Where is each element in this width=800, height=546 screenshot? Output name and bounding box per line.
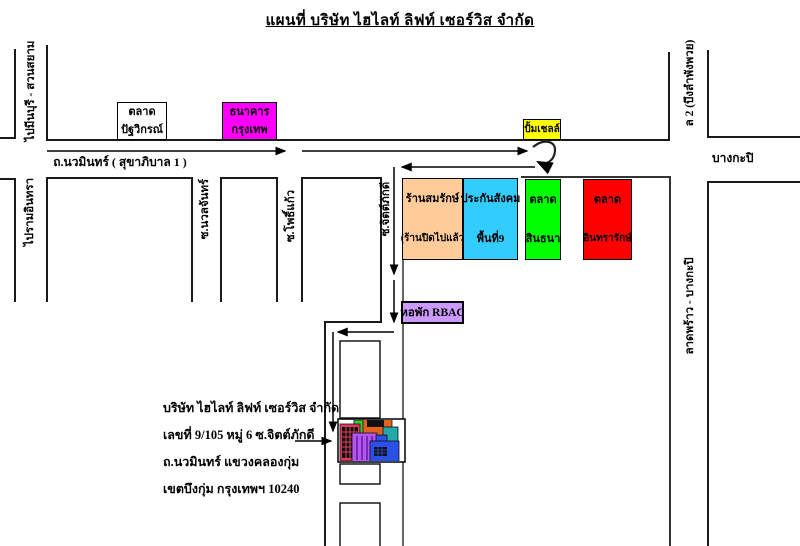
road-edge: [0, 179, 15, 302]
road-label-bangkapi: บางกะปิ: [712, 149, 754, 168]
company-address-line: ถ.นวมินทร์ แขวงคลองกุ่ม: [163, 449, 353, 476]
road-edge: [708, 182, 800, 546]
company-address: บริษัท ไฮไลท์ ลิฟท์ เซอร์วิส จำกัด เลขที…: [163, 395, 353, 503]
road-edge: [47, 178, 192, 302]
company-address-line: เขตบึงกุ่ม กรุงเทพฯ 10240: [163, 476, 353, 503]
landmark-label: พื้นที่9: [477, 233, 505, 245]
landmark-label: หอพัก RBAC: [400, 307, 465, 319]
landmark-sinthana-market: ตลาด สินธนา: [525, 179, 561, 260]
road-label-soi-chitphakdi: ซ.จิตต์ภักดี: [378, 149, 394, 269]
landmark-label: ประกันสังคม: [461, 193, 521, 205]
road-label-sukhaphiban2: ล 2 (บึงลำพังพวย): [682, 13, 698, 153]
landmark-label: (ร้านปิดไปแล้ว: [401, 233, 465, 245]
landmark-label: สินธนา: [526, 233, 561, 245]
road-label-soi-phokaeo: ซ.โพธิ์แก้ว: [283, 156, 299, 276]
landmark-bangkok-bank: ธนาคาร กรุงเทพ: [222, 102, 277, 140]
landmark-somrak-shop: ร้านสมรักษ์ (ร้านปิดไปแล้ว: [402, 178, 463, 260]
landmark-label: ปั้มเชลล์: [524, 124, 559, 136]
road-label-latphrao-bangkapi: ลาดพร้าว - บางกะปิ: [682, 226, 698, 386]
landmark-label: ปัฐวิกรณ์: [121, 124, 163, 136]
landmark-label: ร้านสมรักษ์: [406, 193, 459, 205]
road-edge: [0, 49, 15, 138]
company-address-line: บริษัท ไฮไลท์ ลิฟท์ เซอร์วิส จำกัด: [163, 395, 353, 422]
landmark-shell-station: ปั้มเชลล์: [523, 119, 561, 140]
u-turn-arrow-icon: [533, 142, 555, 164]
building-plot: [340, 503, 380, 546]
landmark-label: ตลาด: [529, 194, 556, 206]
road-label-to-ramindra: ไปรามอินทรา: [22, 152, 38, 272]
landmark-label: ตลาด: [128, 106, 155, 118]
landmark-label: ตลาด: [594, 194, 621, 206]
map-title: แผนที่ บริษัท ไฮไลท์ ลิฟท์ เซอร์วิส จำกั…: [0, 8, 800, 32]
road-label-to-minburi: ไปมีนบุรี - สวนสยาม: [23, 21, 39, 161]
landmark-label: อินทรารักษ์: [583, 233, 631, 245]
landmark-patthawikon-market: ตลาด ปัฐวิกรณ์: [117, 102, 167, 140]
landmark-intrarak-market: ตลาด อินทรารักษ์: [583, 179, 632, 260]
location-map: แผนที่ บริษัท ไฮไลท์ ลิฟท์ เซอร์วิส จำกั…: [0, 0, 800, 546]
landmark-label: กรุงเทพ: [231, 124, 267, 136]
map-lines: [0, 0, 800, 546]
road-edge: [221, 178, 277, 302]
road-label-navamin: ถ.นวมินทร์ ( สุขาภิบาล 1 ): [40, 153, 200, 172]
road-edge: [708, 50, 800, 137]
landmark-social-security-area9: ประกันสังคม พื้นที่9: [463, 178, 518, 260]
landmark-label: ธนาคาร: [230, 106, 270, 118]
landmark-rbac-dorm: หอพัก RBAC: [401, 301, 464, 324]
company-address-line: เลขที่ 9/105 หมู่ 6 ซ.จิตต์ภักดี: [163, 422, 353, 449]
